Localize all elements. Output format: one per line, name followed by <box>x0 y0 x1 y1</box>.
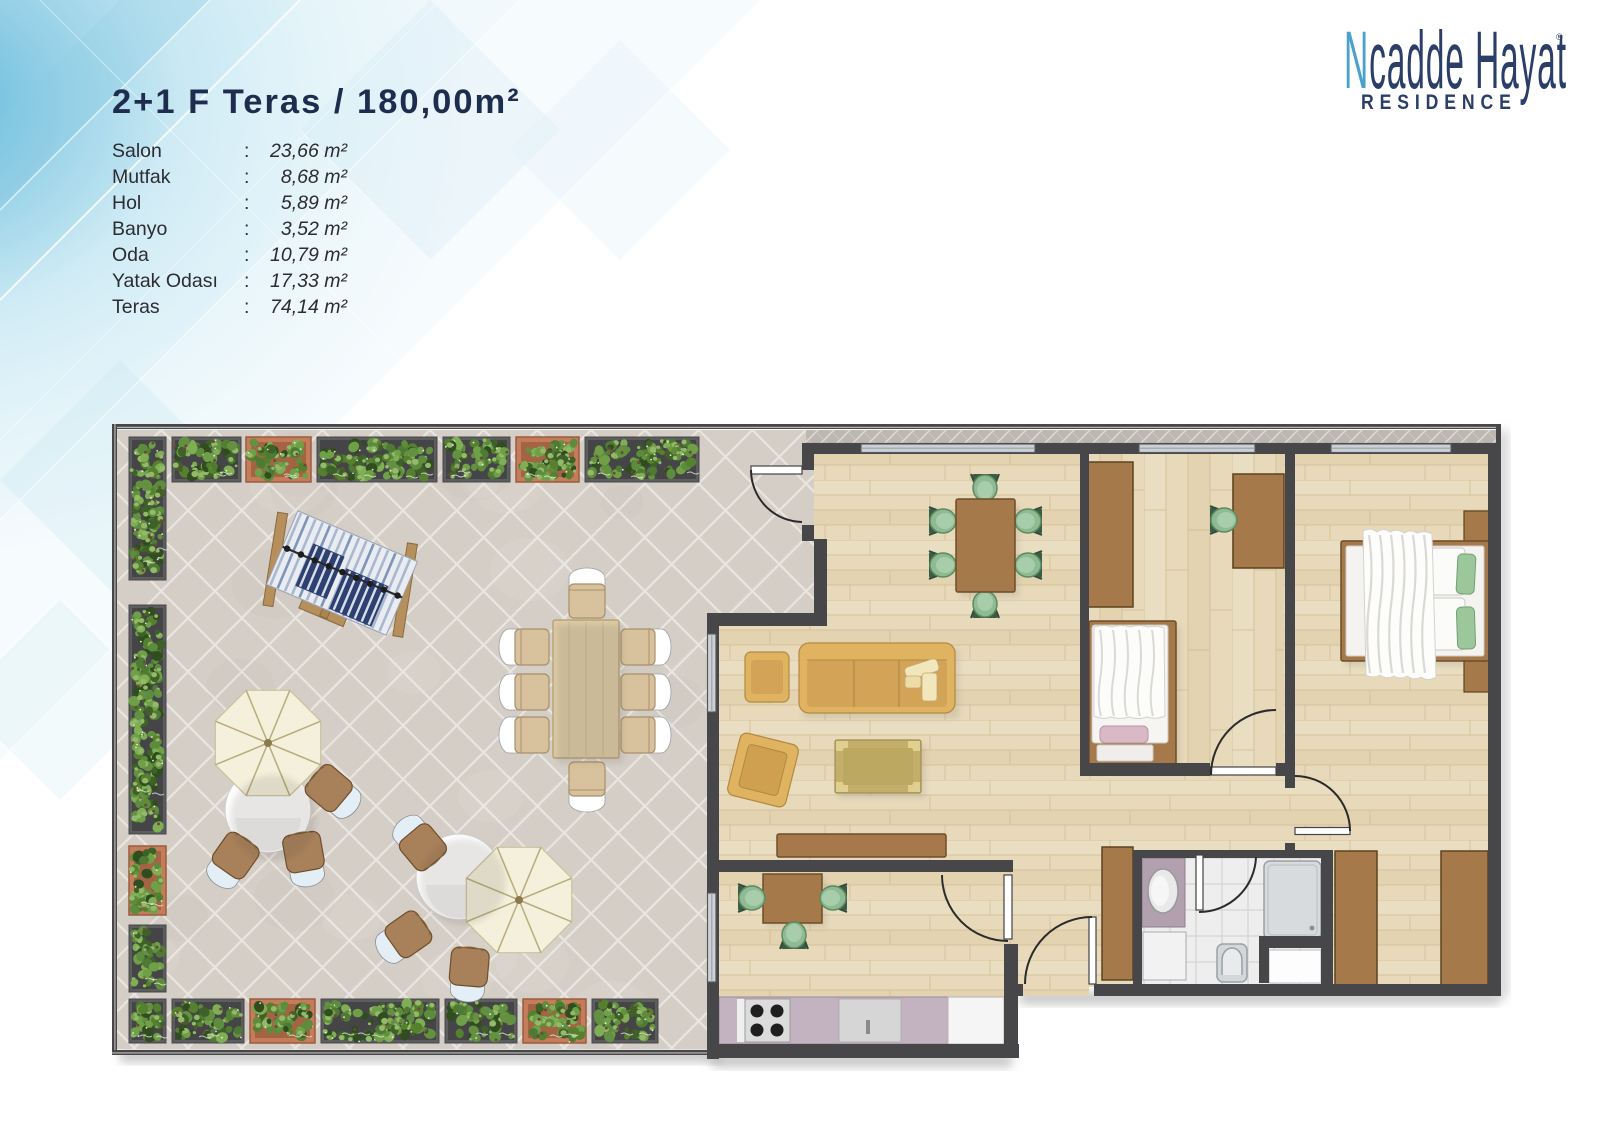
svg-text::: : <box>244 218 249 240</box>
svg-text:Yatak Odası: Yatak Odası <box>112 270 218 292</box>
svg-text::: : <box>244 140 249 162</box>
svg-text:5,89 m²: 5,89 m² <box>281 192 349 214</box>
svg-text::: : <box>244 296 249 318</box>
svg-text:23,66 m²: 23,66 m² <box>269 140 348 162</box>
svg-text:Salon: Salon <box>112 140 162 162</box>
svg-text:17,33 m²: 17,33 m² <box>270 270 348 292</box>
svg-text:Hol: Hol <box>112 192 141 214</box>
svg-text:Banyo: Banyo <box>112 218 167 240</box>
svg-text:2+1 F Teras / 180,00m²: 2+1 F Teras / 180,00m² <box>112 83 521 121</box>
svg-text:10,79 m²: 10,79 m² <box>270 244 348 266</box>
svg-text:®: ® <box>1556 32 1563 42</box>
svg-text:8,68 m²: 8,68 m² <box>281 166 349 188</box>
svg-text:74,14 m²: 74,14 m² <box>270 296 348 318</box>
svg-text:Oda: Oda <box>112 244 149 266</box>
svg-text::: : <box>244 244 249 266</box>
svg-text:Mutfak: Mutfak <box>112 166 171 188</box>
svg-text:3,52 m²: 3,52 m² <box>281 218 349 240</box>
svg-text::: : <box>244 192 249 214</box>
svg-text:RESIDENCE: RESIDENCE <box>1361 91 1517 115</box>
svg-text::: : <box>244 270 249 292</box>
svg-text::: : <box>244 166 249 188</box>
svg-text:Teras: Teras <box>112 296 160 318</box>
